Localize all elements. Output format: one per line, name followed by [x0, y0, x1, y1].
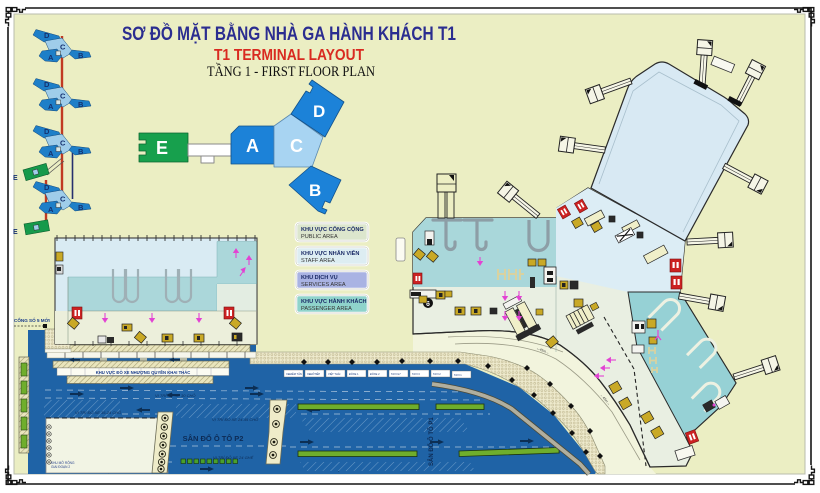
svg-text:VỊ TRÍ ĐỖ XE 24 GHẾ: VỊ TRÍ ĐỖ XE 24 GHẾ	[213, 455, 254, 460]
svg-text:SƠ ĐỒ MẶT BẰNG NHÀ GA HÀNH KHÁ: SƠ ĐỒ MẶT BẰNG NHÀ GA HÀNH KHÁCH T1	[122, 23, 456, 45]
svg-text:D: D	[313, 102, 325, 121]
svg-text:VỊ TRÍ ĐỖ XE 16-24 CHỖ: VỊ TRÍ ĐỖ XE 16-24 CHỖ	[75, 410, 121, 415]
svg-text:KHU VỰC ĐỖ XE NHƯỢNG QUYỀN KHA: KHU VỰC ĐỖ XE NHƯỢNG QUYỀN KHAI THÁC	[96, 370, 191, 375]
svg-text:TAXI 1: TAXI 1	[454, 373, 462, 377]
svg-text:VỊ TRÍ ĐỖ XE 30 CHỖ: VỊ TRÍ ĐỖ XE 30 CHỖ	[155, 393, 195, 398]
svg-text:KHU VỰC CÔNG CỘNG: KHU VỰC CÔNG CỘNG	[301, 225, 364, 233]
svg-text:CỔNG SỐ 5 MỚI: CỔNG SỐ 5 MỚI	[14, 316, 50, 323]
svg-text:VỊ TRÍ ĐỖ XE 24-45 CHỖ: VỊ TRÍ ĐỖ XE 24-45 CHỖ	[212, 417, 258, 422]
svg-text:GIAI ĐOẠN 2: GIAI ĐOẠN 2	[51, 465, 70, 469]
svg-text:T1 TERMINAL LAYOUT: T1 TERMINAL LAYOUT	[214, 47, 364, 64]
svg-text:E: E	[13, 229, 18, 236]
svg-text:PASSENGER AREA: PASSENGER AREA	[301, 306, 352, 312]
svg-text:STAFF AREA: STAFF AREA	[301, 258, 335, 264]
svg-text:E: E	[156, 138, 168, 158]
svg-text:KHU VỰC HÀNH KHÁCH: KHU VỰC HÀNH KHÁCH	[301, 298, 367, 305]
svg-text:SERVICES AREA: SERVICES AREA	[301, 282, 346, 288]
svg-text:SÂN ĐỔ Ô TÔ P1: SÂN ĐỔ Ô TÔ P1	[427, 417, 435, 466]
svg-text:E: E	[13, 175, 18, 182]
svg-text:TAXI G7: TAXI G7	[391, 372, 401, 376]
svg-text:C: C	[290, 136, 303, 156]
svg-text:TẦNG 1 - FIRST FLOOR PLAN: TẦNG 1 - FIRST FLOOR PLAN	[207, 63, 375, 80]
svg-text:TAXI 2: TAXI 2	[433, 372, 441, 376]
svg-text:TAXI 3: TAXI 3	[412, 372, 420, 376]
svg-text:A: A	[246, 136, 259, 156]
svg-text:KHU VỰC NHÂN VIÊN: KHU VỰC NHÂN VIÊN	[301, 249, 359, 257]
svg-text:PUBLIC AREA: PUBLIC AREA	[301, 234, 338, 240]
svg-text:KHU DỊCH VỤ: KHU DỊCH VỤ	[301, 275, 338, 281]
svg-text:B: B	[309, 181, 321, 200]
svg-text:SÂN ĐỔ Ô TÔ P2: SÂN ĐỔ Ô TÔ P2	[183, 434, 244, 443]
